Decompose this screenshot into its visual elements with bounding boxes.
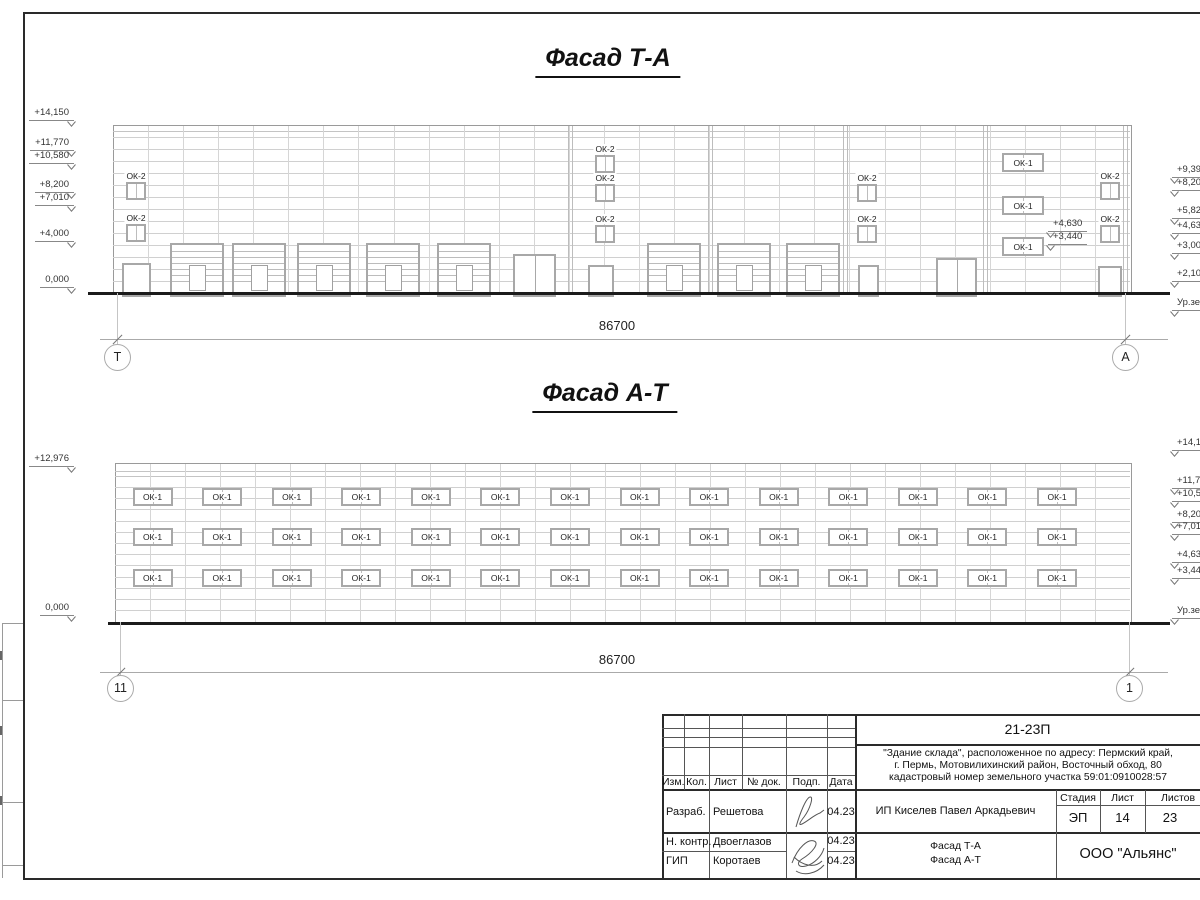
- window-label: ОК-1: [489, 492, 512, 502]
- window-label: ОК-1: [1045, 573, 1068, 583]
- company-name: ООО "Альянс": [1056, 846, 1200, 862]
- elevation-mark-icon: [67, 467, 76, 473]
- window-ok1: ОК-1: [480, 488, 520, 506]
- row-name: Коротаев: [713, 855, 761, 867]
- elevation-mark: +4,000: [35, 227, 74, 242]
- panel-vline: [709, 126, 710, 293]
- gate: [170, 243, 224, 297]
- signature: [790, 793, 826, 833]
- panel-vline: [429, 126, 430, 293]
- elevation-mark: 0,000: [40, 601, 74, 616]
- panel-line: [113, 173, 1130, 174]
- elevation-mark: +5,82: [1172, 204, 1200, 219]
- window-ok1: ОК-1: [480, 528, 520, 546]
- window-ok1: ОК-1: [898, 569, 938, 587]
- door-leaf-line: [957, 260, 958, 295]
- window-ok1: ОК-1: [1002, 196, 1044, 215]
- window-label: ОК-1: [837, 573, 860, 583]
- gate-slat: [299, 257, 349, 258]
- elevation-mark: +7,01: [1172, 520, 1200, 535]
- col-header-podp: Подп.: [786, 776, 827, 788]
- gate-slat: [368, 263, 418, 264]
- gate-slat: [234, 257, 284, 258]
- window-ok1: ОК-1: [272, 528, 312, 546]
- titleblock-line: [662, 832, 1200, 834]
- row-date: 04.23: [827, 806, 855, 818]
- window-ok1: ОК-1: [411, 569, 451, 587]
- window-ok1: ОК-1: [898, 488, 938, 506]
- gate-wicket-door: [189, 265, 206, 291]
- window-ok1: ОК-1: [272, 488, 312, 506]
- window-label: ОК-1: [906, 492, 929, 502]
- panel-line: [115, 588, 1130, 589]
- window-ok2: [595, 155, 615, 173]
- ground-line: [108, 622, 1170, 625]
- titleblock-line: [662, 737, 855, 738]
- panel-vline: [535, 464, 536, 622]
- pilaster-line: [572, 126, 573, 293]
- window-label: ОК-1: [558, 532, 581, 542]
- elevation-mark-icon: [1170, 191, 1179, 197]
- listov-value: 23: [1145, 810, 1195, 825]
- window-label: ОК-1: [628, 573, 651, 583]
- gate-wicket-door: [385, 265, 402, 291]
- row-role: Разраб.: [666, 806, 706, 818]
- panel-vline: [815, 464, 816, 622]
- elevation-mark-icon: [1170, 282, 1179, 288]
- window-label: ОК-1: [906, 573, 929, 583]
- panel-line: [113, 209, 1130, 210]
- window-label: ОК-1: [767, 573, 790, 583]
- elevation-mark: +3,44: [1172, 564, 1200, 579]
- gate-slat: [299, 251, 349, 252]
- window-ok1: ОК-1: [898, 528, 938, 546]
- dimension-label: 86700: [594, 652, 640, 667]
- window-label: ОК-2: [593, 173, 616, 183]
- window-label: ОК-1: [1011, 242, 1034, 252]
- window-label: ОК-1: [141, 492, 164, 502]
- window-ok1: ОК-1: [1037, 528, 1077, 546]
- elevation-mark-icon: [67, 616, 76, 622]
- elevation-mark: +10,58: [1172, 487, 1200, 502]
- margin-table-line: [2, 865, 23, 866]
- gate: [232, 243, 286, 297]
- panel-vline: [605, 464, 606, 622]
- window-label: ОК-1: [419, 573, 442, 583]
- elevation-mark: +12,976: [29, 452, 74, 467]
- gate: [717, 243, 771, 297]
- axis-extension-line: [117, 293, 118, 344]
- elevation-mark: +4,63: [1172, 219, 1200, 234]
- signature: [788, 835, 828, 877]
- window-mullion: [605, 227, 606, 241]
- titleblock-line: [1056, 805, 1200, 806]
- pilaster-line: [712, 126, 713, 293]
- list-value: 14: [1100, 810, 1145, 825]
- project-description-line: "Здание склада", расположенное по адресу…: [858, 748, 1198, 759]
- panel-line: [113, 197, 1130, 198]
- window-label: ОК-2: [855, 173, 878, 183]
- window-label: ОК-1: [976, 573, 999, 583]
- panel-line: [113, 185, 1130, 186]
- axis-marker: Т: [104, 344, 131, 371]
- window-label: ОК-2: [855, 214, 878, 224]
- gate-wicket-door: [736, 265, 753, 291]
- elevation-mark-icon: [67, 121, 76, 127]
- window-ok1: ОК-1: [620, 528, 660, 546]
- window-ok2: [126, 224, 146, 242]
- window-label: ОК-1: [837, 492, 860, 502]
- window-ok1: ОК-1: [689, 488, 729, 506]
- dimension-line: [100, 339, 1168, 340]
- margin-table-line: [2, 700, 23, 701]
- margin-text-fragment: [0, 651, 2, 660]
- window-ok1: ОК-1: [550, 528, 590, 546]
- window-ok1: ОК-1: [828, 488, 868, 506]
- panel-vline: [920, 126, 921, 293]
- list-header: Лист: [1100, 792, 1145, 804]
- window-label: ОК-2: [593, 144, 616, 154]
- window-label: ОК-1: [211, 492, 234, 502]
- window-label: ОК-1: [280, 532, 303, 542]
- window-ok2: [1100, 225, 1120, 243]
- margin-text-fragment: [0, 726, 2, 735]
- axis-marker: 1: [1116, 675, 1143, 702]
- axis-marker: А: [1112, 344, 1139, 371]
- window-label: ОК-1: [558, 573, 581, 583]
- window-ok1: ОК-1: [1002, 237, 1044, 256]
- window-label: ОК-1: [558, 492, 581, 502]
- row-name: Решетова: [713, 806, 763, 818]
- pilaster-line: [847, 126, 848, 293]
- elevation-mark: +8,20: [1172, 176, 1200, 191]
- panel-vline: [849, 126, 850, 293]
- window-ok2: [595, 225, 615, 243]
- titleblock-line: [662, 728, 855, 729]
- elevation-mark-icon: [67, 288, 76, 294]
- pilaster-line: [843, 126, 844, 293]
- stage-header: Стадия: [1056, 792, 1100, 804]
- titleblock-line: [662, 851, 786, 852]
- elevation-mark: +7,010: [35, 191, 74, 206]
- frame-left: [23, 12, 25, 880]
- gate-wicket-door: [251, 265, 268, 291]
- row-date: 04.23: [827, 835, 855, 847]
- window-ok1: ОК-1: [550, 569, 590, 587]
- pilaster-line: [983, 126, 984, 293]
- col-header-data: Дата: [827, 776, 855, 788]
- elevation-mark-icon: [1170, 451, 1179, 457]
- panel-vline: [955, 464, 956, 622]
- sheet-title-line: Фасад Т-А: [857, 840, 1054, 852]
- window-label: ОК-1: [1045, 532, 1068, 542]
- window-label: ОК-1: [211, 573, 234, 583]
- elevation-mark-icon: [1170, 535, 1179, 541]
- gate-slat: [234, 251, 284, 252]
- gate-wicket-door: [316, 265, 333, 291]
- panel-vline: [1025, 464, 1026, 622]
- panel-line: [115, 554, 1130, 555]
- window-ok1: ОК-1: [1002, 153, 1044, 172]
- elevation-mark: +4,63: [1172, 548, 1200, 563]
- window-ok2: [595, 184, 615, 202]
- window-ok1: ОК-1: [550, 488, 590, 506]
- gate-slat: [649, 251, 699, 252]
- gate: [297, 243, 351, 297]
- gate-wicket-door: [456, 265, 473, 291]
- window-ok1: ОК-1: [689, 528, 729, 546]
- window-ok1: ОК-1: [759, 488, 799, 506]
- axis-extension-line: [1129, 622, 1130, 675]
- elevation-mark: +14,15: [1172, 436, 1200, 451]
- gate-slat: [299, 263, 349, 264]
- window-label: ОК-1: [837, 532, 860, 542]
- gate-slat: [368, 251, 418, 252]
- elevation-mark: 0,000: [40, 273, 74, 288]
- pilaster-line: [568, 126, 569, 293]
- window-ok1: ОК-1: [620, 569, 660, 587]
- window-label: ОК-1: [906, 532, 929, 542]
- gate: [786, 243, 840, 297]
- elevation-mark: +3,440: [1048, 230, 1087, 245]
- window-ok1: ОК-1: [341, 488, 381, 506]
- window-mullion: [867, 227, 868, 241]
- window-label: ОК-1: [976, 492, 999, 502]
- pilaster-line: [1127, 126, 1128, 293]
- window-mullion: [605, 157, 606, 171]
- project-description-line: г. Пермь, Мотовилихинский район, Восточн…: [858, 760, 1198, 771]
- panel-line: [113, 221, 1130, 222]
- elevation-mark-icon: [1170, 619, 1179, 625]
- window-label: ОК-1: [698, 492, 721, 502]
- window-label: ОК-1: [767, 532, 790, 542]
- gate-slat: [649, 263, 699, 264]
- window-mullion: [136, 184, 137, 198]
- window-label: ОК-1: [350, 532, 373, 542]
- window-ok1: ОК-1: [272, 569, 312, 587]
- panel-vline: [1060, 126, 1061, 293]
- gate-slat: [172, 263, 222, 264]
- window-label: ОК-1: [489, 532, 512, 542]
- window-ok2: [857, 225, 877, 243]
- window-label: ОК-1: [419, 532, 442, 542]
- window-ok1: ОК-1: [411, 488, 451, 506]
- frame-top: [23, 12, 1200, 14]
- window-label: ОК-2: [124, 171, 147, 181]
- window-ok1: ОК-1: [967, 569, 1007, 587]
- drawing-sheet: Фасад Т-А Фасад А-Т 21-23П "Здание склад…: [0, 0, 1200, 900]
- margin-table-line: [2, 623, 3, 878]
- col-header-izm: Изм.: [662, 776, 684, 788]
- window-label: ОК-1: [419, 492, 442, 502]
- panel-vline: [639, 126, 640, 293]
- window-label: ОК-2: [1098, 171, 1121, 181]
- window-ok1: ОК-1: [759, 569, 799, 587]
- project-description-line: кадастровый номер земельного участка 59:…: [858, 772, 1198, 783]
- window-ok1: ОК-1: [133, 488, 173, 506]
- sheet-title-line: Фасад А-Т: [857, 854, 1054, 866]
- panel-vline: [745, 464, 746, 622]
- gate-slat: [368, 257, 418, 258]
- gate-slat: [439, 263, 489, 264]
- window-label: ОК-1: [628, 492, 651, 502]
- elevation-mark-icon: [67, 164, 76, 170]
- elevation-mark: +3,000: [1172, 239, 1200, 254]
- window-mullion: [136, 226, 137, 240]
- gate: [647, 243, 701, 297]
- gate-slat: [719, 263, 769, 264]
- col-header-list: Лист: [709, 776, 742, 788]
- elevation-mark: Ур.зе: [1172, 296, 1200, 311]
- window-ok1: ОК-1: [133, 528, 173, 546]
- window-label: ОК-2: [593, 214, 616, 224]
- panel-vline: [465, 464, 466, 622]
- gate-slat: [172, 251, 222, 252]
- window-label: ОК-1: [976, 532, 999, 542]
- elevation-mark: +14,150: [29, 106, 74, 121]
- dimension-label: 86700: [594, 318, 640, 333]
- project-code: 21-23П: [855, 721, 1200, 737]
- panel-vline: [675, 464, 676, 622]
- elevation-mark: Ур.зем: [1172, 604, 1200, 619]
- dimension-line: [100, 672, 1168, 673]
- panel-vline: [358, 126, 359, 293]
- window-ok1: ОК-1: [828, 569, 868, 587]
- pilaster-line: [1123, 126, 1124, 293]
- elevation-mark-icon: [67, 242, 76, 248]
- pilaster-line: [708, 126, 709, 293]
- gate-slat: [439, 257, 489, 258]
- window-label: ОК-1: [489, 573, 512, 583]
- window-ok1: ОК-1: [620, 488, 660, 506]
- gate-slat: [788, 257, 838, 258]
- panel-vline: [1095, 126, 1096, 293]
- gate-wicket-door: [666, 265, 683, 291]
- gate: [437, 243, 491, 297]
- parapet-line: [115, 471, 1130, 472]
- panel-vline: [288, 126, 289, 293]
- col-header-kol: Кол.: [684, 776, 709, 788]
- facade-ta-title: Фасад Т-А: [535, 44, 680, 78]
- axis-extension-line: [1125, 293, 1126, 344]
- elevation-mark: +10,580: [29, 149, 74, 164]
- window-ok1: ОК-1: [341, 528, 381, 546]
- panel-line: [115, 565, 1130, 566]
- elevation-mark-icon: [67, 206, 76, 212]
- panel-line: [113, 149, 1130, 150]
- panel-line: [115, 610, 1130, 611]
- elevation-mark: +2,10: [1172, 267, 1200, 282]
- titleblock-line: [855, 744, 1200, 746]
- panel-line: [115, 599, 1130, 600]
- window-label: ОК-1: [1045, 492, 1068, 502]
- window-ok1: ОК-1: [341, 569, 381, 587]
- window-ok1: ОК-1: [967, 488, 1007, 506]
- window-ok1: ОК-1: [759, 528, 799, 546]
- panel-vline: [885, 464, 886, 622]
- margin-text-fragment: [0, 796, 2, 805]
- gate-wicket-door: [805, 265, 822, 291]
- row-name: Двоеглазов: [713, 836, 771, 848]
- window-mullion: [1110, 184, 1111, 198]
- col-header-dok: № док.: [742, 776, 786, 788]
- listov-header: Листов: [1145, 792, 1200, 804]
- window-ok1: ОК-1: [202, 569, 242, 587]
- window-ok1: ОК-1: [411, 528, 451, 546]
- window-label: ОК-1: [767, 492, 790, 502]
- door-leaf-line: [535, 256, 536, 295]
- panel-vline: [569, 126, 570, 293]
- panel-vline: [990, 126, 991, 293]
- panel-line: [113, 137, 1130, 138]
- titleblock-line: [662, 747, 855, 748]
- window-ok2: [857, 184, 877, 202]
- parapet-line: [115, 476, 1130, 477]
- window-ok1: ОК-1: [480, 569, 520, 587]
- gate-slat: [788, 263, 838, 264]
- margin-table-line: [2, 802, 23, 803]
- gate-slat: [439, 251, 489, 252]
- gate-slat: [719, 251, 769, 252]
- gate-slat: [172, 257, 222, 258]
- panel-vline: [255, 464, 256, 622]
- panel-line: [115, 509, 1130, 510]
- elevation-mark-icon: [1170, 311, 1179, 317]
- panel-vline: [395, 464, 396, 622]
- panel-vline: [779, 126, 780, 293]
- panel-line: [113, 161, 1130, 162]
- window-ok1: ОК-1: [828, 528, 868, 546]
- panel-vline: [185, 464, 186, 622]
- window-label: ОК-1: [698, 532, 721, 542]
- panel-vline: [885, 126, 886, 293]
- panel-vline: [499, 126, 500, 293]
- window-ok1: ОК-1: [202, 488, 242, 506]
- panel-line: [115, 521, 1130, 522]
- titleblock-border: [662, 714, 664, 880]
- client-name: ИП Киселев Павел Аркадьевич: [857, 805, 1054, 817]
- gate-slat: [649, 257, 699, 258]
- elevation-mark-icon: [1170, 579, 1179, 585]
- window-mullion: [605, 186, 606, 200]
- window-label: ОК-1: [280, 492, 303, 502]
- ground-line: [88, 292, 1170, 295]
- panel-vline: [1095, 464, 1096, 622]
- window-mullion: [1110, 227, 1111, 241]
- window-label: ОК-2: [1098, 214, 1121, 224]
- margin-table-line: [2, 623, 23, 624]
- stage-value: ЭП: [1056, 810, 1100, 825]
- titleblock-line: [709, 714, 710, 878]
- pilaster-line: [987, 126, 988, 293]
- window-label: ОК-1: [1011, 158, 1034, 168]
- window-ok1: ОК-1: [133, 569, 173, 587]
- axis-extension-line: [120, 622, 121, 675]
- axis-marker: 11: [107, 675, 134, 702]
- window-label: ОК-1: [350, 573, 373, 583]
- panel-vline: [325, 464, 326, 622]
- window-label: ОК-1: [350, 492, 373, 502]
- gate-slat: [788, 251, 838, 252]
- row-role: Н. контр.: [666, 836, 711, 848]
- window-label: ОК-1: [280, 573, 303, 583]
- elevation-mark-icon: [1046, 245, 1055, 251]
- window-ok1: ОК-1: [1037, 488, 1077, 506]
- window-ok1: ОК-1: [202, 528, 242, 546]
- window-label: ОК-1: [698, 573, 721, 583]
- window-label: ОК-1: [141, 573, 164, 583]
- window-ok2: [1100, 182, 1120, 200]
